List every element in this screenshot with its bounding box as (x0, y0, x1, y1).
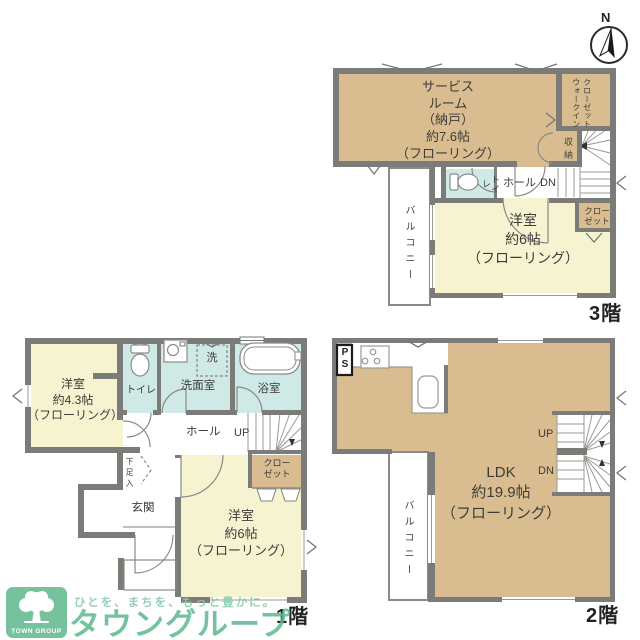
f1-porch (124, 560, 176, 590)
north-arrow-icon (591, 27, 627, 63)
f3-floor-label: 3階 (589, 302, 633, 328)
f1-toilet-icon (131, 345, 149, 376)
f2-ldk-label: LDK 約19.9帖 （フローリング） (415, 463, 587, 524)
f2-kitchen-sink-icon (418, 376, 438, 408)
f1-hall-label: ホール (186, 425, 221, 440)
f2-stove-icon (361, 346, 389, 368)
f3-toilet-icon (450, 174, 478, 190)
f1-up-label: UP (234, 426, 249, 440)
floorplan-page: サービス ルーム （納戸） 約7.6帖 （フローリング） ウォークイン クローゼ… (0, 0, 640, 640)
f1-washer-label: 洗 (197, 351, 227, 365)
logo-brand: タウングループ (69, 599, 291, 640)
f3-balcony-label: バルコニー (403, 201, 413, 289)
f1-closet-label: クロー ゼット (254, 458, 300, 480)
f2-ps-label: P S (338, 347, 352, 370)
f2-up-label: UP (538, 427, 553, 441)
f3-storage-label: 収納 (563, 135, 572, 165)
f1-basin-icon (164, 340, 187, 362)
f2-floor-label: 2階 (586, 604, 630, 630)
tree-icon (6, 587, 67, 627)
f1-bedroom6-label: 洋室 約6帖 （フローリング） (179, 507, 303, 560)
town-group-logo: TOWN GROUP (6, 587, 67, 638)
f1-shoe-label: 下足入 (125, 456, 133, 490)
f1-bedroom43-label: 洋室 約4.3帖 （フローリング） (27, 377, 119, 424)
north-label: N (601, 10, 610, 25)
f3-hall-label: ホール (503, 176, 536, 190)
f1-bathtub-icon (240, 343, 301, 374)
f1-washroom-label: 洗面室 (165, 379, 231, 394)
f3-dn-label: DN (540, 176, 556, 190)
f3-toilet-label: トイレ (481, 170, 499, 198)
logo-box-text: TOWN GROUP (6, 629, 67, 636)
f1-stair-treads (248, 413, 307, 452)
f2-dn-label: DN (538, 464, 554, 478)
f1-toilet-label: トイレ (123, 385, 159, 398)
f2-balcony-label: バルコニー (402, 495, 412, 585)
f3-closet-label: クロー ゼット (579, 206, 615, 226)
f3-service-room-label: サービス ルーム （納戸） 約7.6帖 （フローリング） (338, 79, 558, 162)
f1-bathroom-label: 浴室 (245, 382, 293, 397)
f1-entrance-label: 玄関 (108, 501, 178, 516)
f3-wic-label: ウォークイン クローゼット (570, 77, 592, 129)
